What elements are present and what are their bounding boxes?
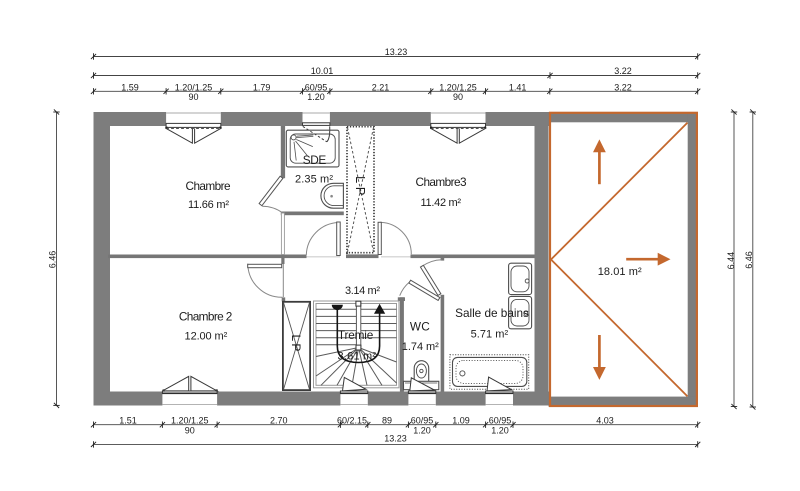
- svg-text:1.09: 1.09: [452, 415, 470, 425]
- svg-text:2.21: 2.21: [372, 82, 390, 92]
- svg-text:3.14 m²: 3.14 m²: [345, 285, 380, 297]
- svg-text:90: 90: [453, 92, 463, 102]
- svg-text:60/95: 60/95: [411, 415, 434, 425]
- svg-text:6.46: 6.46: [744, 251, 754, 269]
- svg-text:60/95: 60/95: [489, 415, 512, 425]
- svg-text:1.20: 1.20: [413, 426, 431, 436]
- svg-text:WC: WC: [410, 320, 430, 334]
- svg-text:60/2.15: 60/2.15: [337, 415, 367, 425]
- svg-text:Salle de bains: Salle de bains: [455, 306, 529, 320]
- svg-text:11.42 m²: 11.42 m²: [421, 197, 462, 209]
- svg-text:1.59: 1.59: [121, 82, 139, 92]
- svg-text:89: 89: [382, 415, 392, 425]
- svg-text:90: 90: [188, 92, 198, 102]
- svg-text:LP: LP: [353, 176, 368, 199]
- svg-text:13.23: 13.23: [384, 434, 407, 444]
- svg-text:1.41: 1.41: [509, 82, 527, 92]
- svg-text:6.46: 6.46: [47, 251, 57, 269]
- svg-text:1.20/1.25: 1.20/1.25: [439, 82, 477, 92]
- svg-text:12.00 m²: 12.00 m²: [185, 331, 228, 343]
- svg-text:2.70: 2.70: [270, 415, 288, 425]
- svg-text:LP: LP: [289, 334, 303, 353]
- svg-text:2.35 m²: 2.35 m²: [295, 173, 333, 185]
- svg-text:10.01: 10.01: [311, 66, 334, 76]
- svg-text:6.44: 6.44: [726, 252, 736, 270]
- svg-text:11.66 m²: 11.66 m²: [188, 199, 229, 211]
- svg-text:13.23: 13.23: [385, 47, 408, 57]
- svg-text:90: 90: [185, 426, 195, 436]
- svg-text:5.71 m²: 5.71 m²: [471, 329, 509, 341]
- svg-text:1.20: 1.20: [491, 426, 509, 436]
- svg-text:3.22: 3.22: [614, 66, 632, 76]
- svg-text:1.51: 1.51: [119, 415, 137, 425]
- svg-text:18.01 m²: 18.01 m²: [598, 266, 642, 278]
- svg-text:60/95: 60/95: [305, 82, 328, 92]
- svg-text:Tremie: Tremie: [338, 328, 374, 342]
- svg-text:4.03: 4.03: [596, 415, 614, 425]
- svg-text:Chambre 2: Chambre 2: [179, 310, 232, 324]
- svg-text:SDE: SDE: [303, 153, 327, 167]
- svg-text:3.22: 3.22: [614, 82, 632, 92]
- svg-text:1.20/1.25: 1.20/1.25: [171, 415, 209, 425]
- svg-text:Chambre: Chambre: [186, 179, 231, 193]
- svg-text:3.61 m²: 3.61 m²: [338, 351, 377, 363]
- svg-text:1.79: 1.79: [253, 82, 271, 92]
- svg-text:1.20/1.25: 1.20/1.25: [175, 82, 213, 92]
- svg-text:Chambre3: Chambre3: [416, 175, 467, 189]
- svg-text:1.74 m²: 1.74 m²: [402, 341, 439, 353]
- svg-text:1.20: 1.20: [307, 92, 325, 102]
